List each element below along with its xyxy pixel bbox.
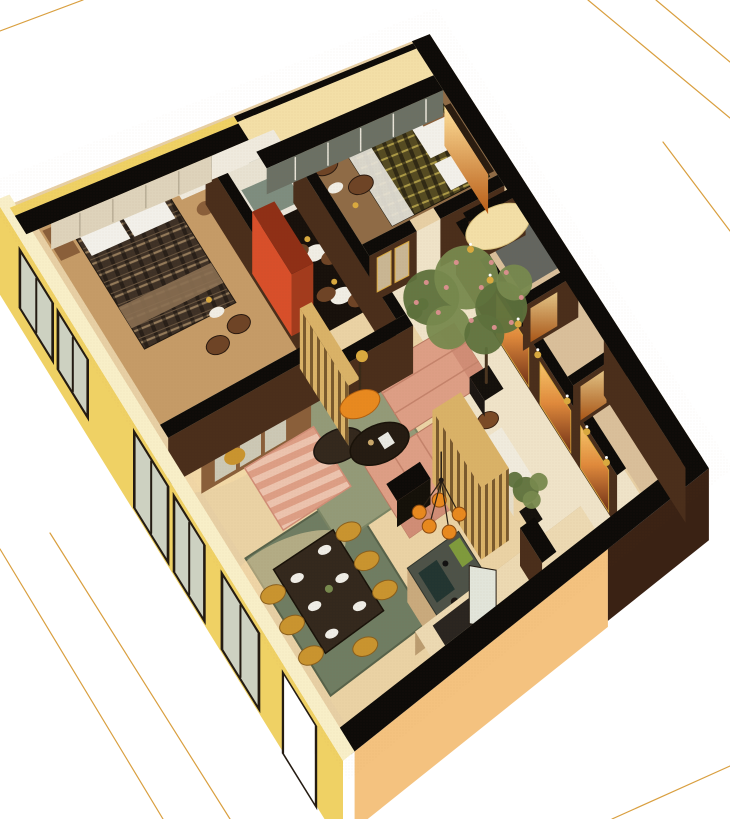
guide-line-7 (612, 766, 730, 819)
guide-line-1 (0, 0, 83, 31)
apartment-render-page (0, 0, 730, 819)
guide-line-5 (0, 549, 163, 819)
layer-exterior-walls (0, 8, 730, 819)
apartment-3d-floorplan-render (0, 0, 730, 819)
guide-line-4 (663, 142, 730, 231)
guide-line-2 (588, 0, 730, 118)
guide-line-3 (656, 0, 730, 62)
